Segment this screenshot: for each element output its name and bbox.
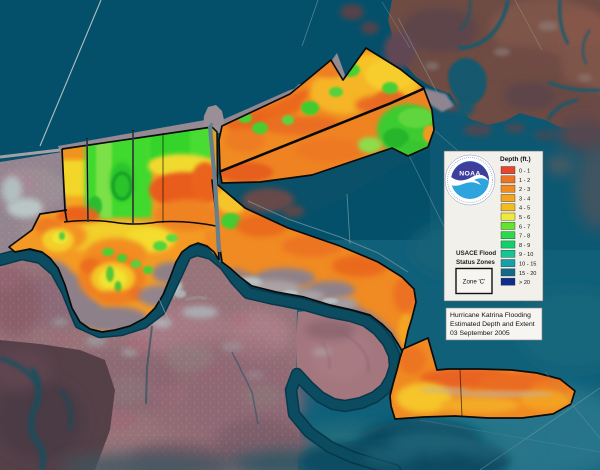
- svg-text:Zone 'C': Zone 'C': [463, 279, 486, 286]
- svg-text:03 September 2005: 03 September 2005: [450, 330, 510, 337]
- svg-text:Estimated Depth and Extent: Estimated Depth and Extent: [450, 321, 535, 328]
- svg-text:5 - 6: 5 - 6: [519, 215, 530, 221]
- svg-text:2 - 3: 2 - 3: [519, 187, 530, 193]
- svg-text:Hurricane Katrina Flooding: Hurricane Katrina Flooding: [450, 312, 531, 319]
- svg-text:NOAA: NOAA: [459, 171, 481, 178]
- svg-text:Status Zones: Status Zones: [456, 259, 495, 266]
- svg-text:8 - 9: 8 - 9: [519, 243, 530, 249]
- svg-text:3 - 4: 3 - 4: [519, 196, 530, 202]
- svg-text:10 - 15: 10 - 15: [519, 262, 536, 268]
- svg-text:0 - 1: 0 - 1: [519, 169, 530, 175]
- svg-text:4 - 5: 4 - 5: [519, 206, 530, 212]
- svg-text:USACE Flood: USACE Flood: [456, 250, 496, 257]
- svg-text:6 - 7: 6 - 7: [519, 224, 530, 230]
- svg-text:1 - 2: 1 - 2: [519, 178, 530, 184]
- svg-text:7 - 8: 7 - 8: [519, 234, 530, 240]
- svg-text:> 20: > 20: [519, 280, 530, 286]
- svg-text:9 - 10: 9 - 10: [519, 252, 533, 258]
- svg-text:Depth (ft.): Depth (ft.): [500, 156, 531, 163]
- svg-text:15 - 20: 15 - 20: [519, 271, 536, 277]
